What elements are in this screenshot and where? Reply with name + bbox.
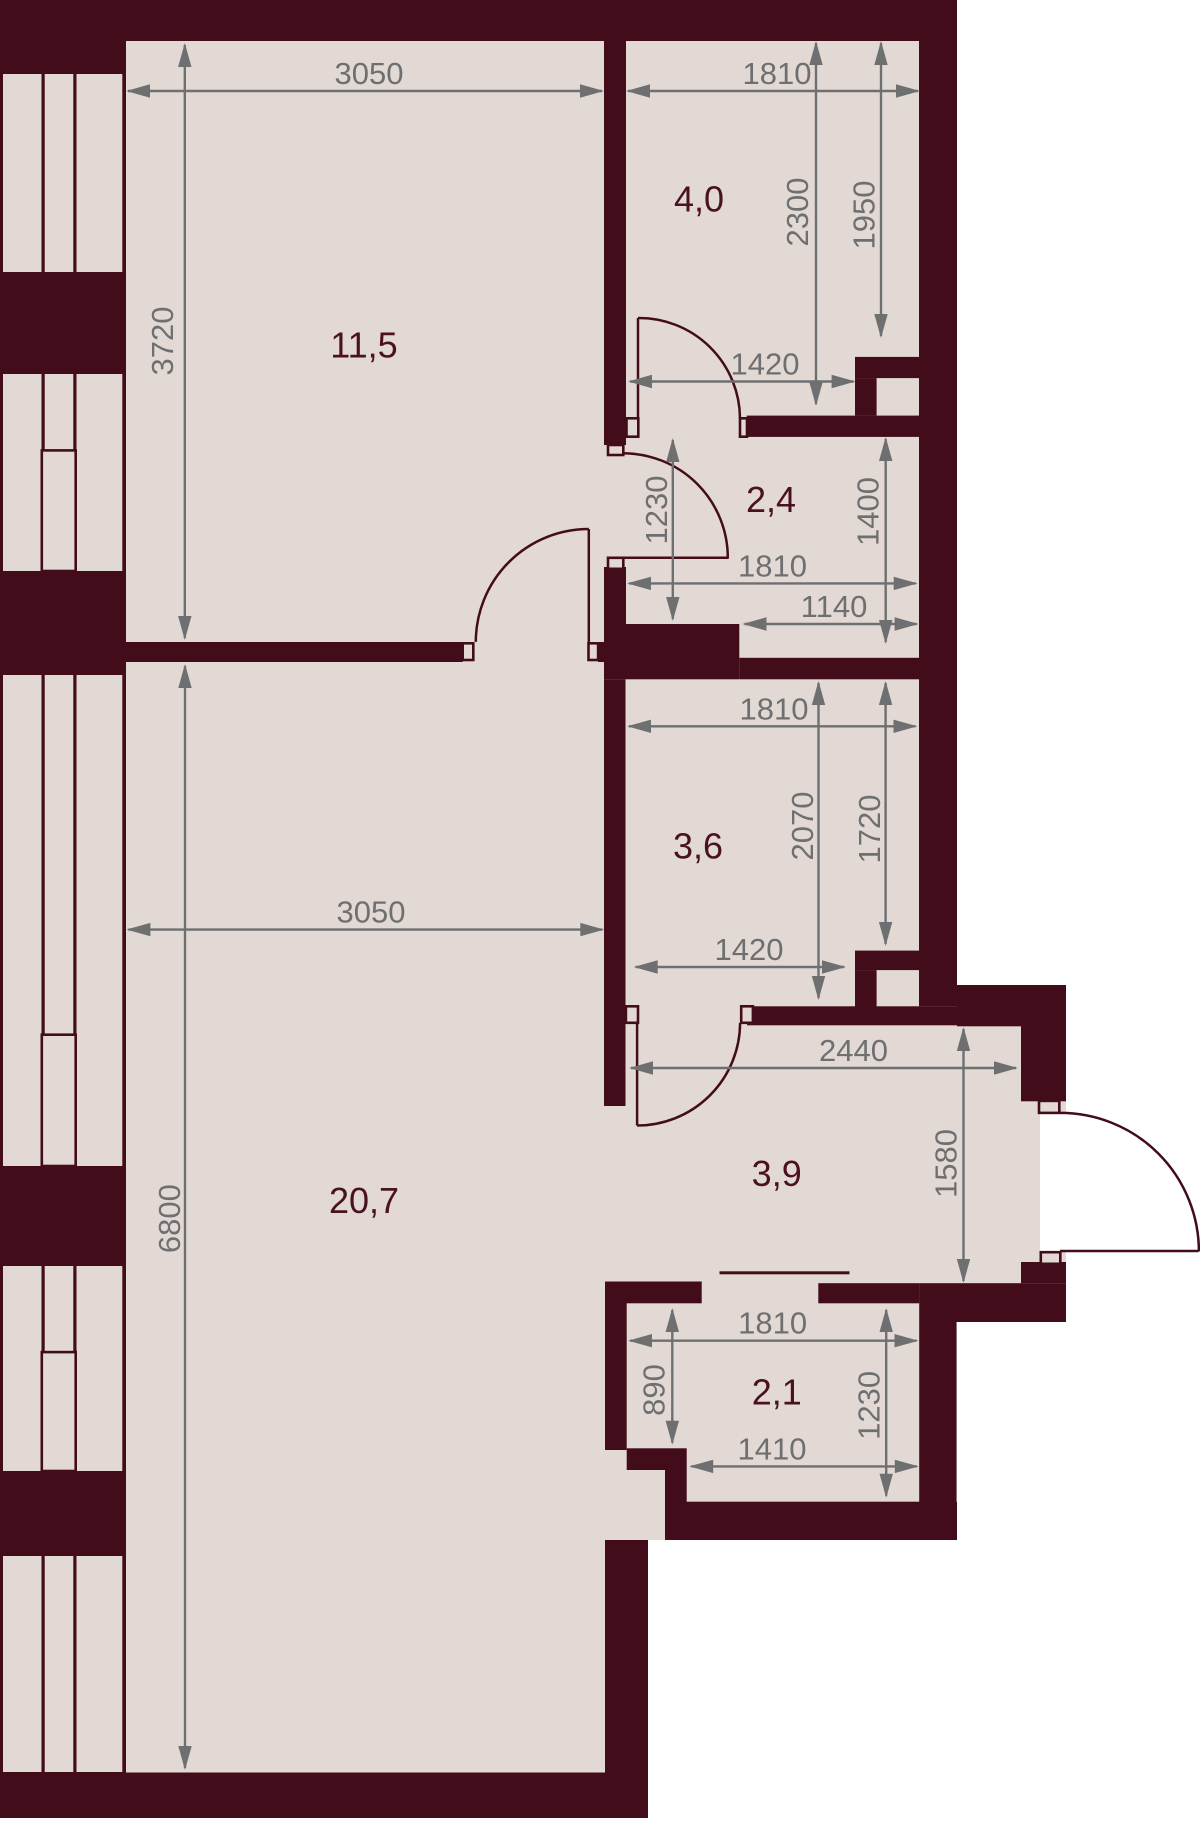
svg-text:1810: 1810 <box>740 691 809 726</box>
svg-text:2,4: 2,4 <box>746 479 796 520</box>
svg-text:1410: 1410 <box>738 1431 807 1466</box>
svg-text:4,0: 4,0 <box>674 179 724 220</box>
svg-text:1720: 1720 <box>852 795 887 864</box>
svg-text:3050: 3050 <box>335 56 404 91</box>
svg-text:890: 890 <box>637 1364 672 1416</box>
svg-text:1950: 1950 <box>847 181 882 250</box>
svg-text:11,5: 11,5 <box>330 325 397 366</box>
svg-text:2440: 2440 <box>819 1033 888 1068</box>
svg-text:2,1: 2,1 <box>752 1371 802 1412</box>
svg-text:1230: 1230 <box>852 1371 887 1440</box>
svg-text:6800: 6800 <box>152 1184 187 1253</box>
svg-text:20,7: 20,7 <box>329 1180 399 1221</box>
svg-text:1810: 1810 <box>743 56 812 91</box>
svg-text:1400: 1400 <box>851 477 886 546</box>
svg-text:1580: 1580 <box>929 1129 964 1198</box>
svg-text:1140: 1140 <box>801 589 868 624</box>
svg-text:3720: 3720 <box>145 307 180 376</box>
svg-text:1420: 1420 <box>731 347 800 382</box>
svg-text:1230: 1230 <box>639 476 674 545</box>
svg-text:3,6: 3,6 <box>673 826 723 867</box>
svg-text:3,9: 3,9 <box>752 1153 802 1194</box>
svg-text:1810: 1810 <box>738 1306 807 1341</box>
svg-text:2300: 2300 <box>780 178 815 247</box>
svg-text:1810: 1810 <box>738 548 807 583</box>
svg-text:3050: 3050 <box>337 895 406 930</box>
svg-text:1420: 1420 <box>715 932 784 967</box>
svg-text:2070: 2070 <box>785 792 820 861</box>
